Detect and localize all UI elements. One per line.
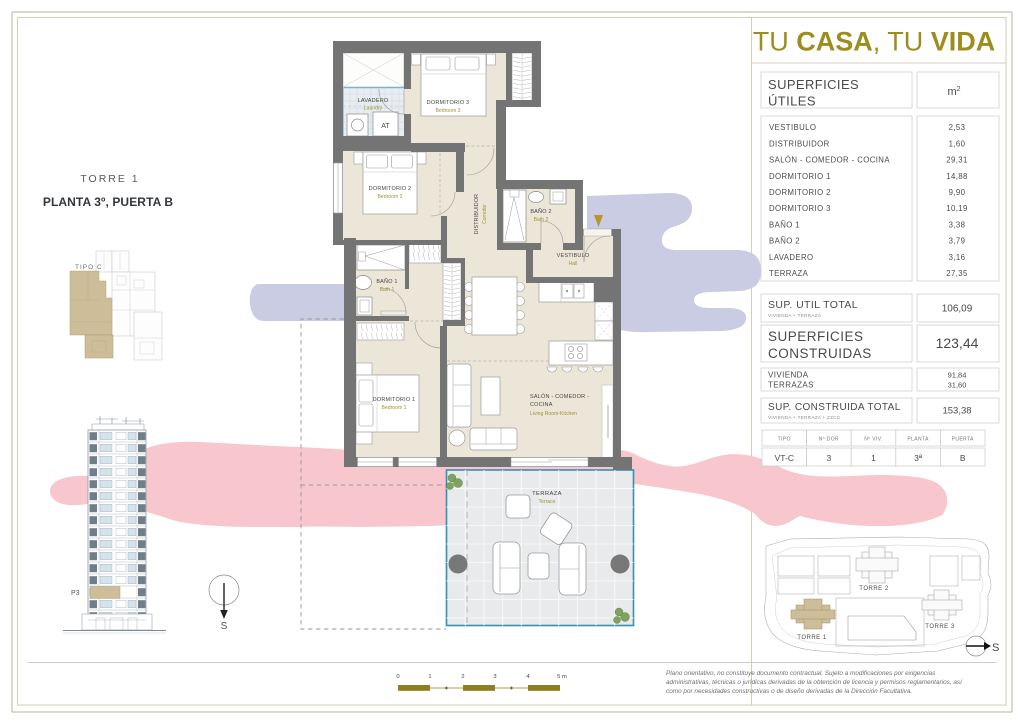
svg-text:P3: P3 (71, 590, 80, 597)
svg-text:TORRE 1: TORRE 1 (797, 635, 827, 641)
svg-text:1,60: 1,60 (949, 139, 966, 148)
svg-text:SUPERFICIES: SUPERFICIES (768, 77, 859, 92)
svg-text:SALÓN - COMEDOR - COCINA: SALÓN - COMEDOR - COCINA (769, 156, 890, 165)
svg-text:SUP. UTIL TOTAL: SUP. UTIL TOTAL (768, 299, 858, 311)
svg-text:AT: AT (381, 123, 390, 130)
svg-text:LAVADERO: LAVADERO (769, 253, 814, 262)
svg-text:Corredor: Corredor (482, 204, 488, 224)
svg-text:SUPERFICIES: SUPERFICIES (768, 329, 864, 344)
svg-text:DORMITORIO 1: DORMITORIO 1 (769, 172, 831, 181)
svg-text:3: 3 (493, 674, 496, 680)
svg-text:DORMITORIO 3: DORMITORIO 3 (427, 100, 470, 106)
svg-text:VIVIENDA + TERRAZA + ZZCC: VIVIENDA + TERRAZA + ZZCC (768, 415, 841, 420)
svg-text:DORMITORIO 3: DORMITORIO 3 (769, 204, 831, 213)
svg-text:DORMITORIO 1: DORMITORIO 1 (373, 397, 416, 403)
svg-text:Laundry: Laundry (364, 106, 383, 112)
svg-text:31,60: 31,60 (948, 381, 967, 390)
svg-text:BAÑO 1: BAÑO 1 (376, 278, 397, 285)
svg-text:5 m: 5 m (557, 674, 567, 680)
svg-text:153,38: 153,38 (942, 406, 971, 417)
svg-text:2: 2 (461, 674, 464, 680)
svg-text:10,19: 10,19 (946, 204, 968, 213)
svg-text:B: B (960, 453, 966, 463)
svg-text:91,84: 91,84 (948, 371, 967, 380)
svg-text:DORMITORIO 2: DORMITORIO 2 (369, 186, 412, 192)
svg-text:S: S (221, 621, 228, 632)
svg-text:como por necesidades construct: como por necesidades constructivas o de … (666, 688, 912, 695)
svg-text:TORRE 1: TORRE 1 (80, 173, 139, 185)
svg-text:Bedroom 3: Bedroom 3 (436, 108, 461, 114)
svg-text:3,16: 3,16 (949, 253, 966, 262)
svg-text:Living Room-Kitchen: Living Room-Kitchen (530, 411, 577, 417)
svg-text:3: 3 (827, 453, 832, 463)
svg-text:2,53: 2,53 (949, 123, 966, 132)
svg-text:3,38: 3,38 (949, 220, 966, 229)
svg-text:administrativas, técnicas o ju: administrativas, técnicas o jurídicas de… (666, 679, 963, 686)
svg-text:Nº DOR: Nº DOR (819, 437, 839, 443)
svg-text:3,79: 3,79 (949, 237, 966, 246)
svg-text:VT-C: VT-C (775, 453, 794, 463)
svg-text:TU CASA, TU VIDA: TU CASA, TU VIDA (753, 27, 996, 57)
svg-text:Bedroom 1: Bedroom 1 (382, 405, 407, 411)
svg-text:TERRAZAS: TERRAZAS (768, 381, 814, 390)
svg-text:123,44: 123,44 (936, 335, 979, 351)
svg-text:ÚTILES: ÚTILES (768, 94, 816, 109)
svg-text:DISTRIBUIDOR: DISTRIBUIDOR (474, 194, 480, 234)
svg-text:VIVIENDA + TERRAZA: VIVIENDA + TERRAZA (768, 313, 822, 318)
svg-text:PLANTA 3º, PUERTA B: PLANTA 3º, PUERTA B (43, 195, 174, 209)
svg-text:TORRE 3: TORRE 3 (925, 624, 955, 630)
svg-text:DISTRIBUIDOR: DISTRIBUIDOR (769, 139, 830, 148)
svg-text:TIPO: TIPO (778, 437, 791, 443)
svg-text:106,09: 106,09 (942, 304, 973, 315)
svg-text:Terrace: Terrace (539, 499, 556, 505)
svg-text:TORRE 2: TORRE 2 (859, 586, 889, 592)
svg-text:Bedroom 2: Bedroom 2 (378, 194, 403, 200)
svg-text:TIPO C: TIPO C (75, 264, 103, 271)
svg-text:SALÓN - COMEDOR -: SALÓN - COMEDOR - (530, 393, 589, 400)
svg-text:3ª: 3ª (914, 453, 923, 463)
svg-text:SUP. CONSTRUIDA TOTAL: SUP. CONSTRUIDA TOTAL (768, 402, 901, 413)
svg-text:1: 1 (428, 674, 431, 680)
svg-text:0: 0 (396, 674, 399, 680)
svg-text:29,31: 29,31 (946, 156, 968, 165)
svg-text:CONSTRUIDAS: CONSTRUIDAS (768, 346, 872, 361)
svg-text:27,35: 27,35 (946, 269, 968, 278)
svg-text:1: 1 (871, 453, 876, 463)
svg-text:BAÑO 2: BAÑO 2 (530, 208, 551, 215)
svg-text:14,88: 14,88 (946, 172, 968, 181)
svg-text:LAVADERO: LAVADERO (358, 98, 389, 104)
svg-text:S: S (992, 642, 999, 654)
svg-text:Hall: Hall (569, 261, 578, 267)
svg-text:DORMITORIO 2: DORMITORIO 2 (769, 188, 831, 197)
svg-text:BAÑO 2: BAÑO 2 (769, 237, 800, 246)
svg-text:COCINA: COCINA (530, 402, 553, 408)
svg-text:TERRAZA: TERRAZA (769, 269, 809, 278)
svg-text:Nº VIV.: Nº VIV. (864, 437, 883, 443)
svg-text:Plano orientativo, no constitu: Plano orientativo, no constituye documen… (666, 670, 936, 677)
svg-text:PUERTA: PUERTA (952, 437, 974, 443)
svg-text:9,90: 9,90 (949, 188, 966, 197)
svg-text:BAÑO 1: BAÑO 1 (769, 220, 800, 229)
svg-text:VESTIBULO: VESTIBULO (769, 123, 816, 132)
svg-text:VIVIENDA: VIVIENDA (768, 371, 809, 380)
svg-text:TERRAZA: TERRAZA (532, 491, 562, 497)
svg-text:PLANTA: PLANTA (907, 437, 929, 443)
